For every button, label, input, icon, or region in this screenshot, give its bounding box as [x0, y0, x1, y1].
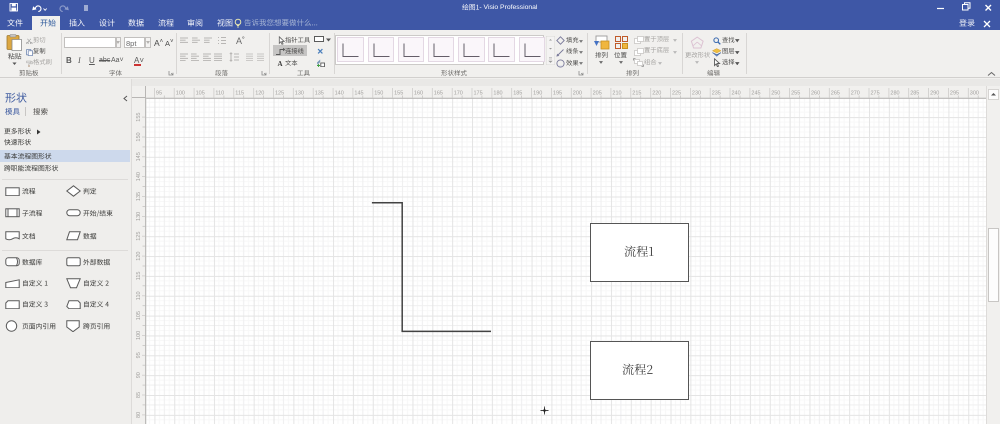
svg-text:195: 195 [553, 90, 562, 96]
svg-text:95: 95 [156, 90, 162, 96]
svg-text:190: 190 [533, 90, 542, 96]
svg-text:225: 225 [672, 90, 681, 96]
svg-text:270: 270 [851, 90, 860, 96]
svg-text:120: 120 [136, 252, 142, 261]
svg-text:165: 165 [434, 90, 443, 96]
svg-text:150: 150 [374, 90, 383, 96]
svg-text:250: 250 [771, 90, 780, 96]
svg-text:220: 220 [652, 90, 661, 96]
svg-text:80: 80 [136, 412, 142, 418]
svg-text:265: 265 [831, 90, 840, 96]
svg-text:185: 185 [513, 90, 522, 96]
svg-text:200: 200 [573, 90, 582, 96]
svg-text:100: 100 [176, 90, 185, 96]
svg-text:95: 95 [136, 352, 142, 358]
svg-text:230: 230 [692, 90, 701, 96]
svg-text:210: 210 [613, 90, 622, 96]
svg-text:300: 300 [970, 90, 979, 96]
svg-text:85: 85 [136, 392, 142, 398]
svg-text:155: 155 [136, 113, 142, 122]
svg-text:135: 135 [136, 192, 142, 201]
svg-text:245: 245 [752, 90, 761, 96]
svg-text:120: 120 [255, 90, 264, 96]
svg-text:125: 125 [136, 232, 142, 241]
svg-text:275: 275 [871, 90, 880, 96]
svg-text:215: 215 [632, 90, 641, 96]
svg-text:145: 145 [355, 90, 364, 96]
svg-text:115: 115 [235, 90, 244, 96]
svg-text:160: 160 [414, 90, 423, 96]
svg-text:140: 140 [335, 90, 344, 96]
svg-text:105: 105 [196, 90, 205, 96]
svg-text:295: 295 [950, 90, 959, 96]
svg-text:280: 280 [891, 90, 900, 96]
svg-text:260: 260 [811, 90, 820, 96]
svg-text:175: 175 [474, 90, 483, 96]
svg-text:105: 105 [136, 311, 142, 320]
svg-text:115: 115 [136, 272, 142, 281]
svg-text:150: 150 [136, 133, 142, 142]
svg-text:205: 205 [593, 90, 602, 96]
svg-text:140: 140 [136, 172, 142, 181]
svg-text:240: 240 [732, 90, 741, 96]
svg-text:170: 170 [454, 90, 463, 96]
svg-text:235: 235 [712, 90, 721, 96]
svg-text:130: 130 [136, 212, 142, 221]
svg-text:130: 130 [295, 90, 304, 96]
svg-text:155: 155 [394, 90, 403, 96]
svg-text:110: 110 [216, 90, 225, 96]
svg-text:290: 290 [930, 90, 939, 96]
svg-text:135: 135 [315, 90, 324, 96]
svg-text:145: 145 [136, 152, 142, 161]
svg-text:125: 125 [275, 90, 284, 96]
svg-text:90: 90 [136, 372, 142, 378]
svg-text:110: 110 [136, 292, 142, 301]
svg-text:180: 180 [494, 90, 503, 96]
svg-text:255: 255 [791, 90, 800, 96]
svg-text:100: 100 [136, 331, 142, 340]
svg-text:285: 285 [910, 90, 919, 96]
